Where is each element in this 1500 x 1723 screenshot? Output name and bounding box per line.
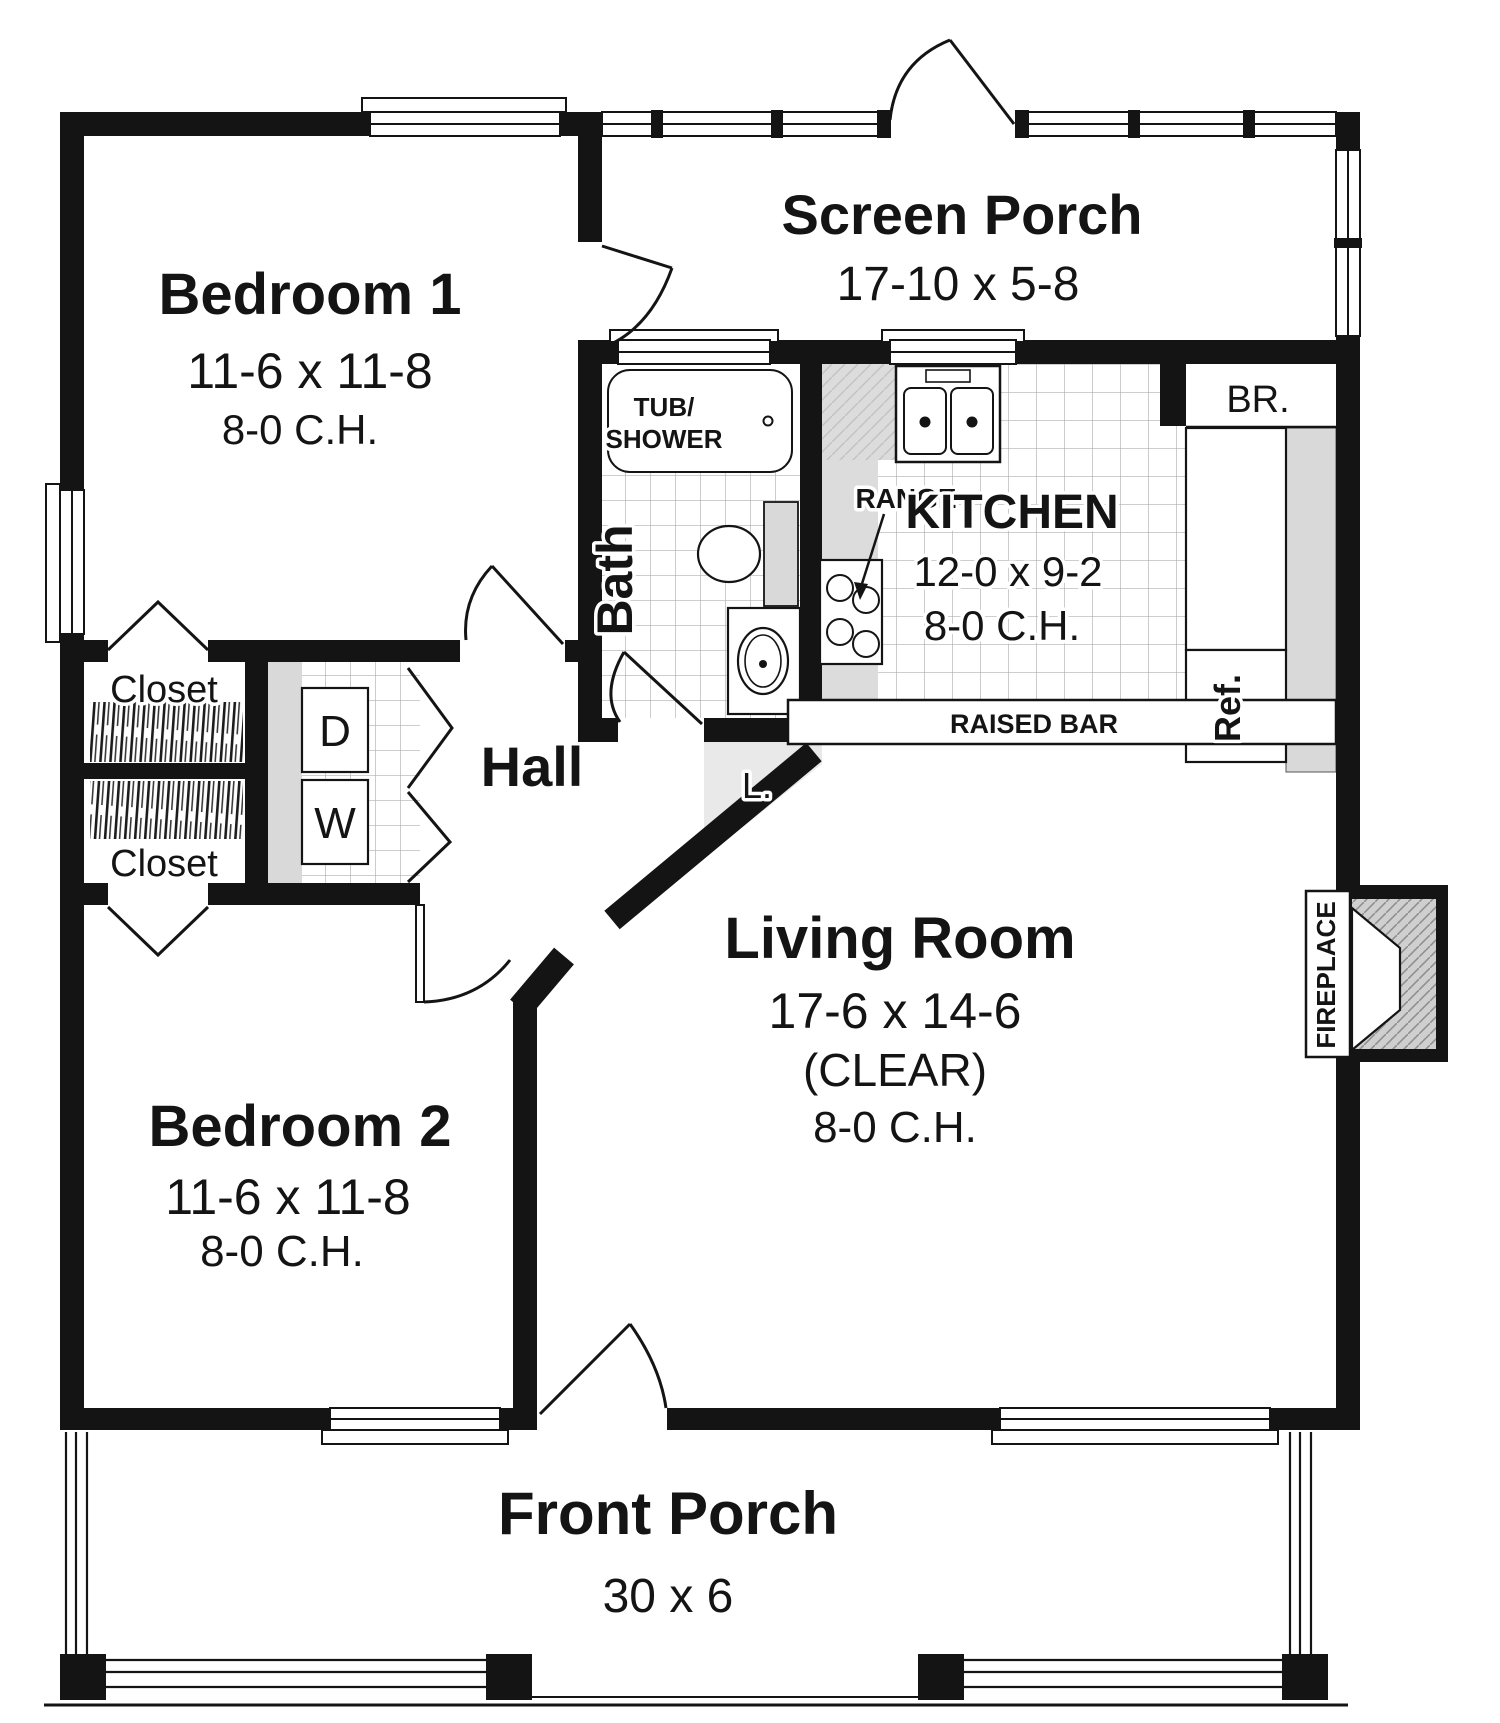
wall-porch-bottom-2: [770, 340, 890, 364]
door-bed2-leaf: [416, 905, 424, 1002]
linen-label: L.: [742, 765, 772, 806]
closet-top-label: Closet: [110, 669, 218, 711]
kitchen-sink-drain-right: [967, 417, 978, 428]
dims-living: 17-6 x 14-6: [769, 983, 1022, 1039]
wall-closet-south-2: [208, 883, 420, 905]
refrigerator-label: Ref.: [1207, 674, 1248, 742]
closet-top-rod-hatch: [90, 702, 243, 762]
porch-post-3: [918, 1654, 964, 1700]
kitchen-sink-faucet-base: [926, 370, 970, 382]
room-label-bedroom2: Bedroom 2: [149, 1094, 452, 1159]
screen-divider-2: [771, 110, 783, 138]
room-label-kitchen: KITCHEN: [905, 486, 1118, 539]
bath-sink-drain: [759, 660, 767, 668]
clear-living: (CLEAR): [803, 1044, 987, 1096]
wall-bath-kitchen: [800, 340, 822, 742]
window-bed1-left-sill: [46, 484, 60, 642]
window-bed1-top-sill: [362, 98, 566, 112]
dims-front-porch: 30 x 6: [603, 1570, 734, 1623]
porch-post-2: [486, 1654, 532, 1700]
floor-plan-drawing: Bedroom 1 11-6 x 11-8 8-0 C.H. Screen Po…: [0, 0, 1500, 1723]
wall-right-top: [1336, 112, 1360, 150]
wall-bottom-4: [1270, 1408, 1360, 1430]
closet-bottom-label: Closet: [110, 843, 218, 885]
dryer-label: D: [319, 707, 351, 756]
room-label-living: Living Room: [724, 906, 1075, 971]
wall-bottom-3: [667, 1408, 1000, 1430]
ceiling-bedroom1: 8-0 C.H.: [222, 406, 378, 453]
wall-bottom-2: [500, 1408, 537, 1430]
porch-post-1: [60, 1654, 106, 1700]
background: [0, 0, 1500, 1723]
porch-post-4: [1282, 1654, 1328, 1700]
floor-plan-page: Bedroom 1 11-6 x 11-8 8-0 C.H. Screen Po…: [0, 0, 1500, 1723]
toilet-bowl: [698, 526, 760, 582]
wall-bed2-east: [513, 1000, 537, 1408]
room-label-hall: Hall: [481, 735, 584, 798]
room-label-bedroom1: Bedroom 1: [159, 262, 462, 327]
wall-bath-south-1: [578, 718, 618, 742]
dims-kitchen: 12-0 x 9-2: [913, 548, 1102, 595]
fireplace-label: FIREPLACE: [1311, 901, 1341, 1048]
laundry-back-counter: [268, 662, 302, 883]
wall-right-mid: [1336, 336, 1360, 885]
window-bed2-sill: [322, 1430, 508, 1444]
screen-right-divider: [1334, 238, 1362, 248]
screen-door-jamb-right: [1015, 110, 1029, 138]
dims-bedroom1: 11-6 x 11-8: [187, 343, 433, 399]
toilet-tank: [764, 502, 798, 606]
wall-top-bed1-left: [60, 112, 370, 136]
wall-left-lower: [60, 634, 84, 1430]
screen-divider-1: [651, 110, 663, 138]
wall-closet-south-1: [84, 883, 108, 905]
screen-divider-4: [1243, 110, 1255, 138]
wall-right-bottom: [1336, 1062, 1360, 1430]
washer-label: W: [314, 799, 356, 848]
ceiling-kitchen: 8-0 C.H.: [924, 602, 1080, 649]
wall-bottom-1: [60, 1408, 330, 1430]
room-label-front-porch: Front Porch: [498, 1480, 838, 1547]
ceiling-living: 8-0 C.H.: [813, 1103, 977, 1152]
window-living-sill: [992, 1430, 1278, 1444]
floor-fills: [0, 0, 1500, 1723]
kitchen-left-counter-lower: [822, 662, 878, 702]
ceiling-bedroom2: 8-0 C.H.: [200, 1227, 364, 1276]
screen-door-jamb-left: [877, 110, 891, 138]
dims-bedroom2: 11-6 x 11-8: [165, 1169, 411, 1225]
closet-bottom-rod-hatch: [90, 781, 243, 839]
kitchen-sink-drain-left: [920, 417, 931, 428]
wall-closet-east: [245, 640, 268, 905]
screen-divider-3: [1128, 110, 1140, 138]
wall-left-upper: [60, 112, 84, 490]
wall-stub-bed1-porch: [578, 112, 602, 242]
kitchen-corner-counter-hatch: [822, 364, 898, 460]
wall-bed1-south-1: [60, 640, 108, 662]
kitchen-cabinet-column: [1186, 428, 1286, 650]
tub-label-1: TUB/: [634, 392, 695, 422]
wall-closet-divider: [84, 763, 245, 779]
room-label-bath: Bath: [587, 524, 643, 635]
wall-br-stub: [1160, 364, 1186, 426]
raised-bar-label: RAISED BAR: [950, 709, 1118, 739]
broom-closet-label: BR.: [1226, 379, 1289, 421]
dims-screen-porch: 17-10 x 5-8: [837, 258, 1080, 311]
room-label-screen-porch: Screen Porch: [781, 183, 1142, 246]
wall-porch-bottom-3: [1016, 340, 1360, 364]
tub-label-2: SHOWER: [606, 424, 723, 454]
